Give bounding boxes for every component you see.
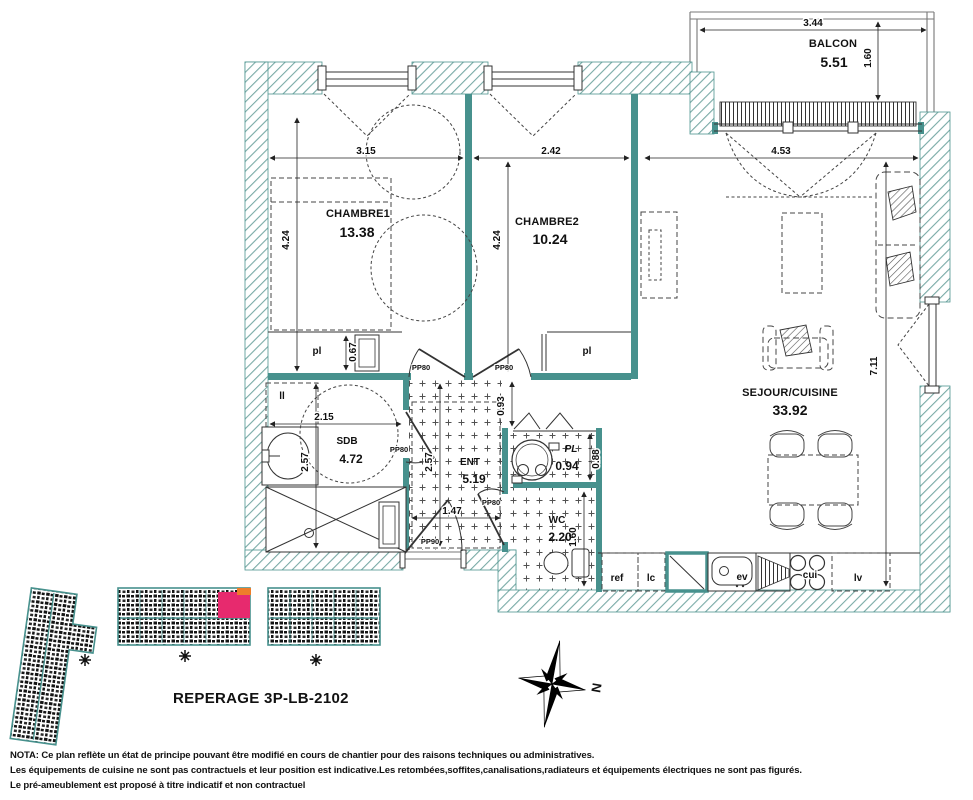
pl-folding-door [513,413,596,431]
chambre1-area: 13.38 [339,224,374,240]
ent-height-dim: 2.57 [424,452,435,472]
chambre2-window [484,66,582,136]
mini-compass-1 [79,654,91,666]
washer-label: ll [279,391,285,402]
ent-area: 5.19 [462,472,486,486]
hob-label: cui [803,570,818,581]
sejour-side-window [898,297,939,393]
sejour-width-dim: 4.53 [771,146,791,157]
nota-block: NOTA: Ce plan reflète un état de princip… [10,750,802,791]
sdb-area: 4.72 [339,452,363,466]
chambre2-door-tag: PP80 [495,363,513,372]
balcony-depth-dim: 1.60 [863,48,874,68]
dining-set [768,431,858,530]
sdb-width-dim: 2.15 [314,412,334,423]
reperage-title: REPERAGE 3P-LB-2102 [173,690,349,707]
nota-line3: Le pré-ameublement est proposé à titre i… [10,780,305,791]
nota-line1: NOTA: Ce plan reflète un état de princip… [10,750,594,761]
sofa [876,172,920,318]
pl-area: 0.94 [555,459,579,473]
chambre1-window [318,66,416,136]
turning-circle-2 [371,215,477,321]
balcony-railing [720,102,916,126]
fridge [602,553,638,591]
compass-rose: N [511,635,611,737]
closet1-depth-dim: 0.67 [348,342,359,362]
sink-label: ev [736,572,748,583]
dishwasher-label: lv [854,573,863,584]
bed [271,178,391,330]
tv [649,230,661,280]
entrance-door-tag: PP90 [421,537,439,546]
tv-bench [641,212,677,298]
armchair [763,325,833,370]
key-plan-right [268,588,380,645]
chambre1-height-dim: 4.24 [281,230,292,250]
sink [708,553,756,591]
fridge-label: ref [611,573,624,584]
chambre1-door-tag: PP80 [412,363,430,372]
pl-name: PL [565,444,578,455]
ent-width-dim: 1.47 [442,506,462,517]
balcony-area: 5.51 [820,54,847,70]
drainer [756,553,790,591]
wc-area: 2.20 [548,530,572,544]
ent-cabinet [379,502,399,548]
chambre2-closet-label: pl [583,346,592,357]
chambre1-width-dim: 3.15 [356,146,376,157]
cupboard [638,553,665,591]
ent-name: ENT [460,457,480,468]
pl-height-dim: 0.88 [591,449,602,469]
wc-door-tag: PP80 [482,498,500,507]
sejour-name: SEJOUR/CUISINE [742,387,838,399]
ent-offset-dim: 0.93 [496,396,507,416]
sejour-height-dim: 7.11 [869,356,880,375]
sdb-door-tag: PP80 [390,445,408,454]
chambre2-height-dim: 4.24 [492,230,503,250]
nota-line2: Les équipements de cuisine ne sont pas c… [10,765,802,776]
cupboard-label: lc [647,573,656,584]
balcony-width-dim: 3.44 [803,18,823,29]
key-plans: REPERAGE 3P-LB-2102 [10,588,380,748]
mini-compass-2 [179,650,191,662]
dishwasher [832,553,890,591]
kitchen [598,553,920,591]
floor-plan-svg: 3.44 1.60 3.15 2.42 4.53 4.24 4.24 7.11 … [0,0,973,800]
key-plan-middle [118,588,251,645]
turning-circle-1 [366,105,460,199]
chambre1-closet-label: pl [313,346,322,357]
key-plan-left [10,588,100,748]
sdb-height-dim: 2.57 [300,452,311,472]
north-label: N [588,682,604,694]
mini-compass-3 [310,654,322,666]
balcony-name: BALCON [809,38,857,50]
sejour-balcony-window [714,122,922,197]
coffee-table [782,213,822,293]
chambre2-width-dim: 2.42 [541,146,561,157]
sejour-area: 33.92 [772,402,807,418]
floor-plan-page: 3.44 1.60 3.15 2.42 4.53 4.24 4.24 7.11 … [0,0,973,800]
wc-name: WC [549,515,566,526]
highlighted-unit [218,592,250,618]
sdb-name: SDB [336,436,357,447]
balcony [690,12,934,126]
chambre1-name: CHAMBRE1 [326,208,390,220]
chambre2-area: 10.24 [532,231,567,247]
chambre2-name: CHAMBRE2 [515,216,579,228]
highlighted-balcony [237,588,251,595]
